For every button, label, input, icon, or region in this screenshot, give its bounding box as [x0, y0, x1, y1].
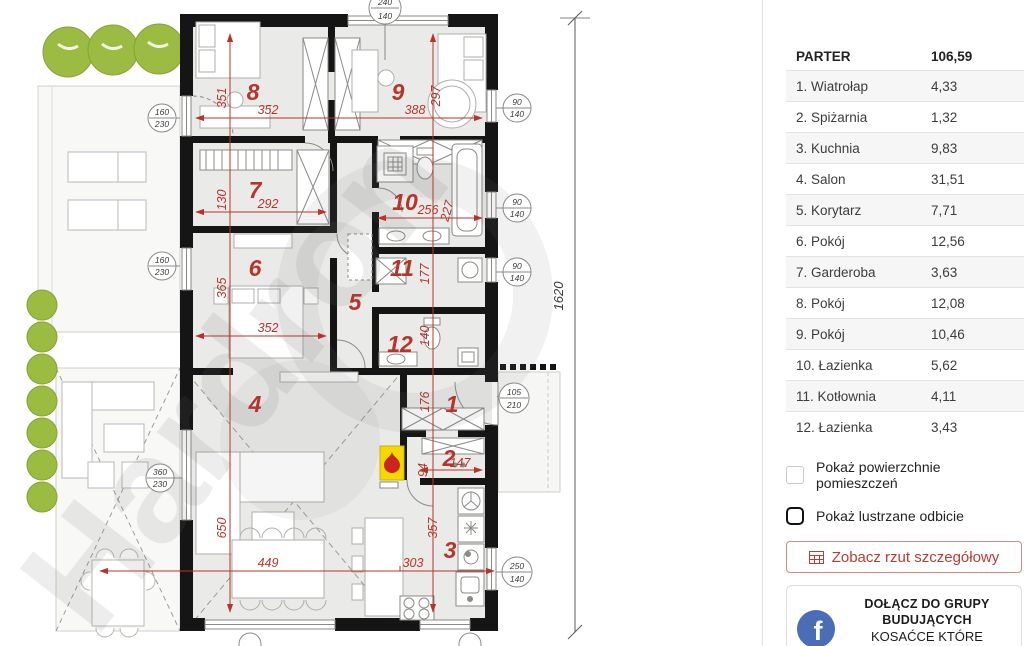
room-label: 4. Salon	[796, 172, 931, 187]
svg-text:140: 140	[510, 273, 524, 283]
svg-text:140: 140	[510, 574, 524, 584]
svg-text:160: 160	[155, 255, 169, 265]
trees	[43, 24, 184, 77]
svg-text:650: 650	[215, 518, 229, 539]
room-area: 31,51	[931, 172, 1021, 187]
svg-text:449: 449	[258, 556, 279, 570]
detail-plan-button-label: Zobacz rzut szczegółowy	[832, 549, 1000, 566]
svg-text:352: 352	[258, 321, 279, 335]
facebook-line-3: KOSAĆCE KTÓRE KOCHACIE	[843, 629, 1011, 646]
room-area: 10,46	[931, 327, 1021, 342]
facebook-group-card[interactable]: f DOŁĄCZ DO GRUPY BUDUJĄCYCH KOSAĆCE KTÓ…	[786, 585, 1022, 646]
room-5-number: 5	[349, 289, 363, 315]
show-mirror-label: Pokaż lustrzane odbicie	[816, 508, 964, 524]
facebook-line-2: BUDUJĄCYCH	[843, 612, 1011, 628]
show-mirror-checkbox-row[interactable]: Pokaż lustrzane odbicie	[786, 507, 1024, 525]
room-10-number: 10	[392, 189, 418, 215]
svg-text:210: 210	[506, 400, 521, 410]
overall-height-label: 1620	[551, 281, 566, 311]
room-area: 7,71	[931, 203, 1021, 218]
table-row: 12. Łazienka 3,43	[786, 411, 1024, 442]
table-row: 4. Salon 31,51	[786, 163, 1024, 194]
table-row: 1. Wiatrołap 4,33	[786, 70, 1024, 101]
table-row: 6. Pokój 12,56	[786, 225, 1024, 256]
room-label: 2. Spiżarnia	[796, 110, 931, 125]
room-3-number: 3	[444, 537, 457, 563]
svg-text:360: 360	[153, 467, 167, 477]
svg-text:177: 177	[418, 263, 432, 285]
table-row: 2. Spiżarnia 1,32	[786, 101, 1024, 132]
room-label: 11. Kotłownia	[796, 389, 931, 404]
detail-plan-button[interactable]: Zobacz rzut szczegółowy	[786, 541, 1022, 573]
svg-text:365: 365	[215, 278, 229, 299]
room-6-number: 6	[249, 255, 262, 281]
page: Hardron 8 9 7 10 6 11 5 12 4 1 2	[0, 0, 1024, 646]
svg-text:240: 240	[377, 0, 392, 7]
show-areas-label: Pokaż powierzchnie pomieszczeń	[816, 459, 1024, 491]
room-4-number: 4	[248, 391, 262, 417]
show-areas-checkbox[interactable]	[786, 466, 804, 484]
svg-text:130: 130	[215, 190, 229, 211]
svg-text:388: 388	[405, 103, 426, 117]
svg-text:160: 160	[155, 107, 169, 117]
svg-text:230: 230	[152, 479, 167, 489]
room-area: 1,32	[931, 110, 1021, 125]
room-12-number: 12	[387, 331, 413, 357]
room-area: 3,63	[931, 265, 1021, 280]
table-row: 3. Kuchnia 9,83	[786, 132, 1024, 163]
table-row: 5. Korytarz 7,71	[786, 194, 1024, 225]
show-mirror-checkbox[interactable]	[786, 507, 804, 525]
room-8-number: 8	[247, 79, 260, 105]
table-row: 7. Garderoba 3,63	[786, 256, 1024, 287]
floor-plan-area: Hardron 8 9 7 10 6 11 5 12 4 1 2	[0, 0, 762, 646]
svg-text:140: 140	[418, 326, 432, 347]
room-label: 6. Pokój	[796, 234, 931, 249]
table-header-row: PARTER 106,59	[786, 42, 1024, 70]
svg-text:147: 147	[450, 456, 472, 470]
side-panel: PARTER 106,59 1. Wiatrołap 4,33 2. Spiża…	[762, 0, 1024, 646]
room-label: 7. Garderoba	[796, 265, 931, 280]
svg-text:351: 351	[215, 88, 229, 109]
options: Pokaż powierzchnie pomieszczeń Pokaż lus…	[786, 459, 1024, 525]
room-9-number: 9	[392, 79, 405, 105]
table-row: 8. Pokój 12,08	[786, 287, 1024, 318]
floor-plan-drawing: Hardron 8 9 7 10 6 11 5 12 4 1 2	[0, 0, 762, 646]
room-area: 12,08	[931, 296, 1021, 311]
room-area: 9,83	[931, 141, 1021, 156]
facebook-icon: f	[797, 610, 835, 646]
room-label: 1. Wiatrołap	[796, 79, 931, 94]
table-row: 9. Pokój 10,46	[786, 318, 1024, 349]
svg-text:140: 140	[510, 109, 524, 119]
show-areas-checkbox-row[interactable]: Pokaż powierzchnie pomieszczeń	[786, 459, 1024, 491]
marker-kitchen-window: 250 140	[496, 557, 532, 587]
room-area: 5,62	[931, 358, 1021, 373]
room-label: 8. Pokój	[796, 296, 931, 311]
room-label: 5. Korytarz	[796, 203, 931, 218]
svg-text:90: 90	[512, 261, 522, 271]
room-label: 3. Kuchnia	[796, 141, 931, 156]
room-area: 12,56	[931, 234, 1021, 249]
svg-text:230: 230	[154, 267, 169, 277]
svg-text:94: 94	[416, 463, 430, 477]
svg-text:140: 140	[510, 209, 524, 219]
grid-icon	[809, 551, 824, 564]
facebook-card-text: DOŁĄCZ DO GRUPY BUDUJĄCYCH KOSAĆCE KTÓRE…	[843, 596, 1011, 646]
floor-name: PARTER	[796, 49, 931, 64]
svg-text:230: 230	[154, 119, 169, 129]
svg-text:90: 90	[512, 97, 522, 107]
floor-total-area: 106,59	[931, 49, 1021, 64]
svg-text:90: 90	[512, 197, 522, 207]
room-1-number: 1	[446, 391, 459, 417]
svg-text:140: 140	[378, 11, 392, 21]
marker-right-1: 90 140	[496, 94, 531, 122]
overall-dimension: 1620	[551, 11, 590, 639]
facebook-line-1: DOŁĄCZ DO GRUPY	[843, 596, 1011, 612]
room-label: 10. Łazienka	[796, 358, 931, 373]
svg-text:105: 105	[507, 387, 521, 397]
room-area: 4,11	[931, 389, 1021, 404]
room-label: 9. Pokój	[796, 327, 931, 342]
table-row: 10. Łazienka 5,62	[786, 349, 1024, 380]
room-label: 12. Łazienka	[796, 420, 931, 435]
table-row: 11. Kotłownia 4,11	[786, 380, 1024, 411]
svg-text:297: 297	[429, 85, 443, 108]
room-area: 4,33	[931, 79, 1021, 94]
room-11-number: 11	[390, 255, 414, 281]
svg-text:303: 303	[403, 556, 424, 570]
svg-text:352: 352	[258, 103, 279, 117]
svg-text:176: 176	[418, 392, 432, 413]
svg-text:292: 292	[257, 197, 279, 211]
svg-text:357: 357	[426, 517, 440, 539]
marker-right-3: 90 140	[496, 258, 531, 286]
svg-text:256: 256	[417, 203, 439, 217]
svg-text:250: 250	[509, 561, 524, 571]
room-areas-table: PARTER 106,59 1. Wiatrołap 4,33 2. Spiża…	[786, 42, 1024, 442]
room-area: 3,43	[931, 420, 1021, 435]
